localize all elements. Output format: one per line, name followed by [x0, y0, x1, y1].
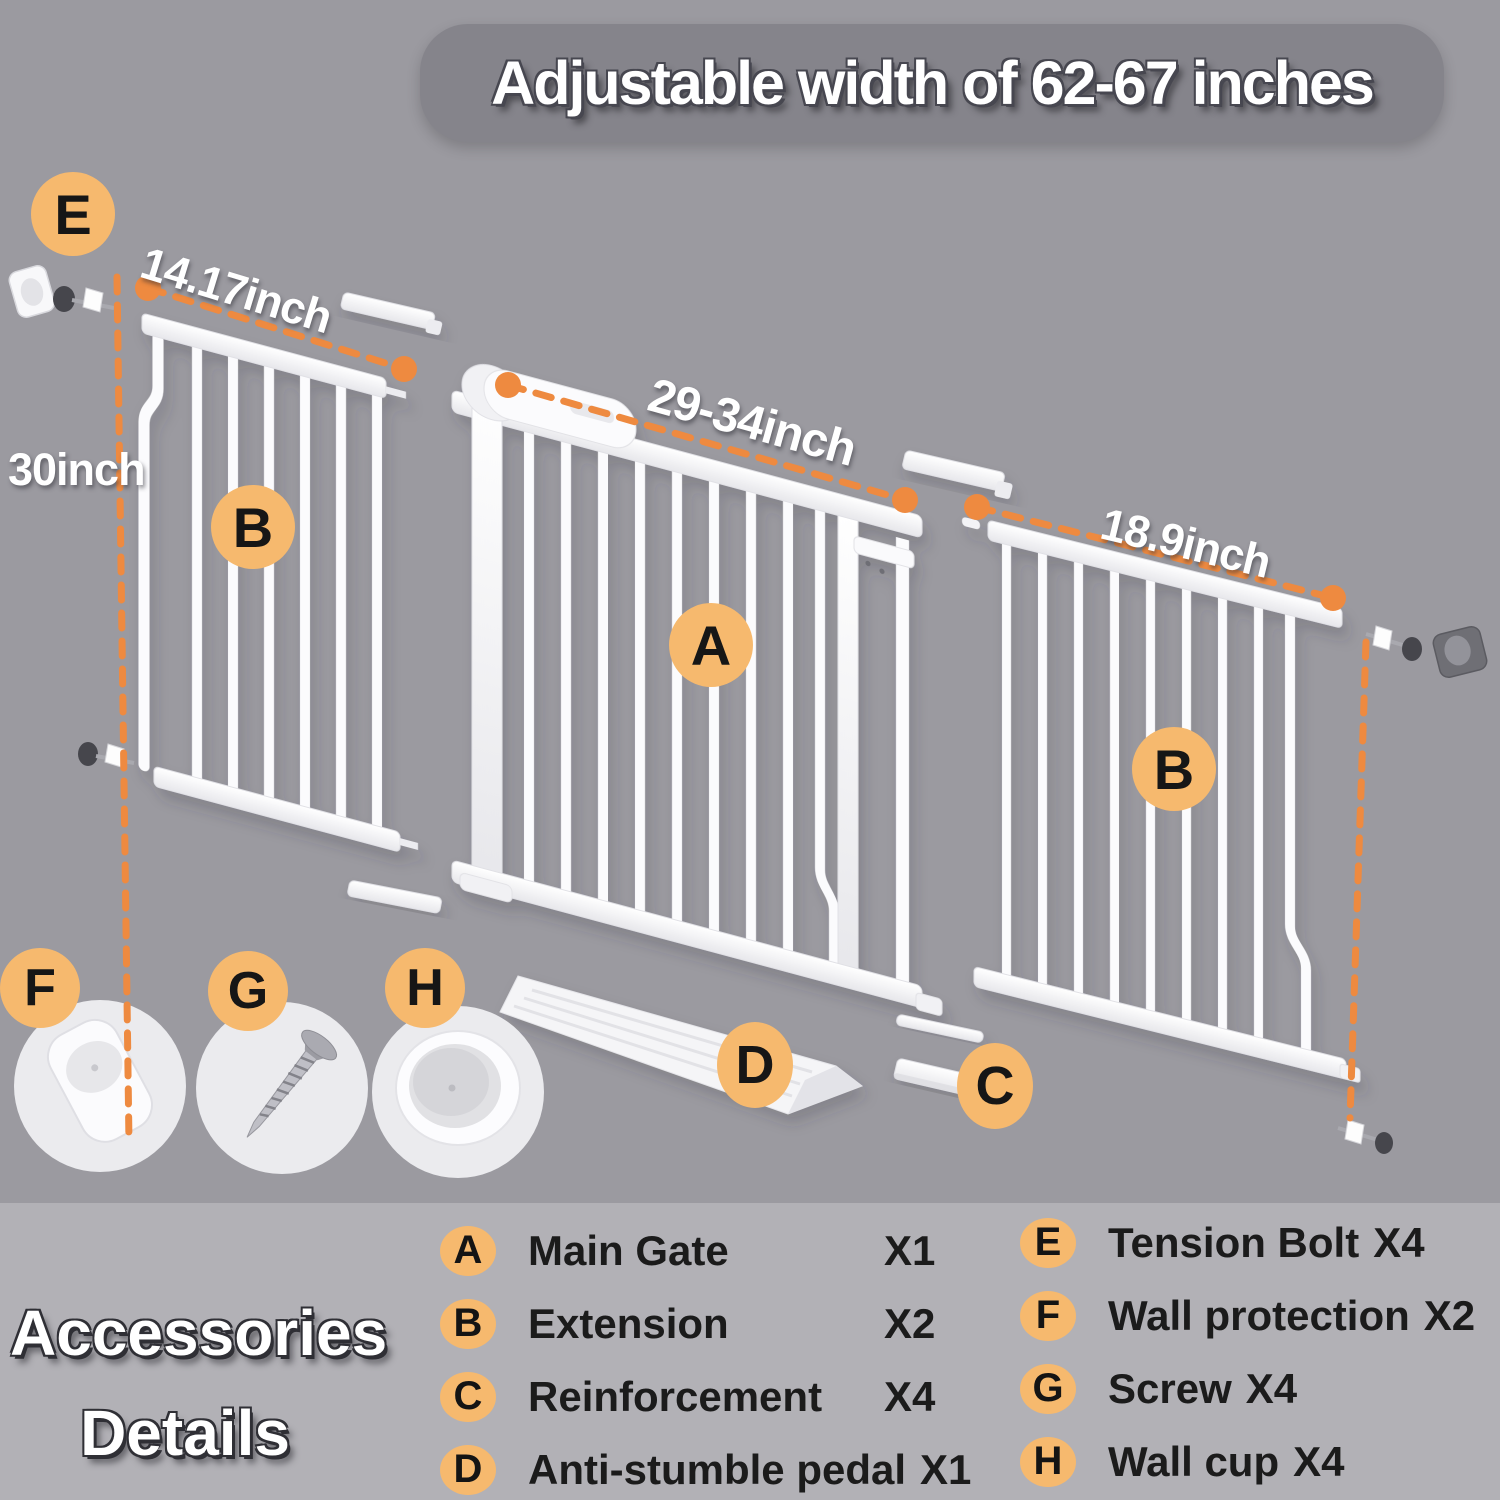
- part-label-reinforcement: C: [957, 1043, 1033, 1129]
- part-label-wall-protection: F: [0, 948, 80, 1028]
- legend-name: Wall cup: [1108, 1438, 1279, 1486]
- part-label-main-gate: A: [669, 603, 753, 687]
- legend-title-line2: Details: [20, 1396, 350, 1470]
- legend-name: Extension: [528, 1300, 870, 1348]
- extension-panel-left: [142, 313, 418, 857]
- right-bent-bar: [1290, 615, 1306, 1051]
- legend-count: X1: [884, 1227, 935, 1275]
- part-label-pedal: D: [717, 1022, 793, 1108]
- legend-count: X1: [920, 1446, 971, 1494]
- left-bent-bar: [144, 336, 158, 770]
- legend-count: X4: [1373, 1219, 1424, 1267]
- legend-name: Screw: [1108, 1365, 1232, 1413]
- legend-item-main-gate: A Main Gate X1: [440, 1214, 971, 1287]
- measurement-height: 30inch: [8, 444, 145, 496]
- legend-badge-c: C: [440, 1372, 496, 1422]
- wall-cup-top-left: [7, 264, 56, 320]
- legend-badge-d: D: [440, 1445, 496, 1495]
- legend-item-extension: B Extension X2: [440, 1287, 971, 1360]
- legend-badge-g: G: [1020, 1364, 1076, 1414]
- legend-badge-a: A: [440, 1226, 496, 1276]
- bottom-rail: [974, 967, 1346, 1080]
- legend-badge-f: F: [1020, 1291, 1076, 1341]
- rail-connector-top-left: [339, 292, 444, 336]
- wall-cup-item: [372, 1006, 544, 1178]
- part-label-tension-bolt: E: [31, 172, 115, 256]
- legend-title-line1: Accessories: [10, 1296, 340, 1370]
- gate-product-infographic: Adjustable width of 62-67 inches 14.17in…: [0, 0, 1500, 1500]
- legend-name: Tension Bolt: [1108, 1219, 1359, 1267]
- part-label-extension-left: B: [211, 485, 295, 569]
- latch-post: [838, 509, 858, 980]
- legend-item-screw: G Screw X4: [1020, 1352, 1475, 1425]
- legend-count: X4: [1246, 1365, 1297, 1413]
- title-banner: Adjustable width of 62-67 inches: [420, 24, 1444, 142]
- tension-bolt-top-left: [53, 286, 114, 312]
- legend-badge-e: E: [1020, 1218, 1076, 1268]
- dimension-line-right-height: [1350, 642, 1366, 1118]
- part-label-wall-cup: H: [385, 948, 465, 1028]
- bottom-rail: [154, 766, 400, 852]
- mount-post: [472, 383, 502, 887]
- legend-item-wall-protection: F Wall protection X2: [1020, 1279, 1475, 1352]
- legend-count: X2: [1424, 1292, 1475, 1340]
- main-gate: [452, 355, 942, 1018]
- legend-name: Wall protection: [1108, 1292, 1410, 1340]
- legend-item-tension-bolt: E Tension Bolt X4: [1020, 1206, 1475, 1279]
- legend-item-pedal: D Anti-stumble pedal X1: [440, 1433, 971, 1500]
- rail-connector-bottom-left: [347, 880, 442, 914]
- legend-column-right: E Tension Bolt X4 F Wall protection X2 G…: [1020, 1206, 1475, 1498]
- rail-connector-middle: [900, 450, 1015, 500]
- wall-cup-top-right: [1431, 625, 1488, 679]
- legend-item-reinforcement: C Reinforcement X4: [440, 1360, 971, 1433]
- legend-name: Anti-stumble pedal: [528, 1446, 906, 1494]
- legend-item-wall-cup: H Wall cup X4: [1020, 1425, 1475, 1498]
- legend-count: X4: [1293, 1438, 1344, 1486]
- legend-name: Main Gate: [528, 1227, 870, 1275]
- tension-bolt-top-right: [1366, 626, 1422, 661]
- reinforcement-bar-thin: [896, 1014, 984, 1043]
- anti-stumble-pedal: [500, 976, 862, 1114]
- banner-title: Adjustable width of 62-67 inches: [491, 48, 1373, 118]
- legend-column-left: A Main Gate X1 B Extension X2 C Reinforc…: [440, 1214, 971, 1500]
- legend-badge-h: H: [1020, 1437, 1076, 1487]
- legend-count: X4: [884, 1373, 935, 1421]
- screw-item: [196, 1002, 368, 1174]
- legend-badge-b: B: [440, 1299, 496, 1349]
- legend-count: X2: [884, 1300, 935, 1348]
- part-label-screw: G: [208, 951, 288, 1031]
- tension-bolt-bottom-right: [1338, 1120, 1393, 1154]
- legend-name: Reinforcement: [528, 1373, 870, 1421]
- part-label-extension-right: B: [1132, 727, 1216, 811]
